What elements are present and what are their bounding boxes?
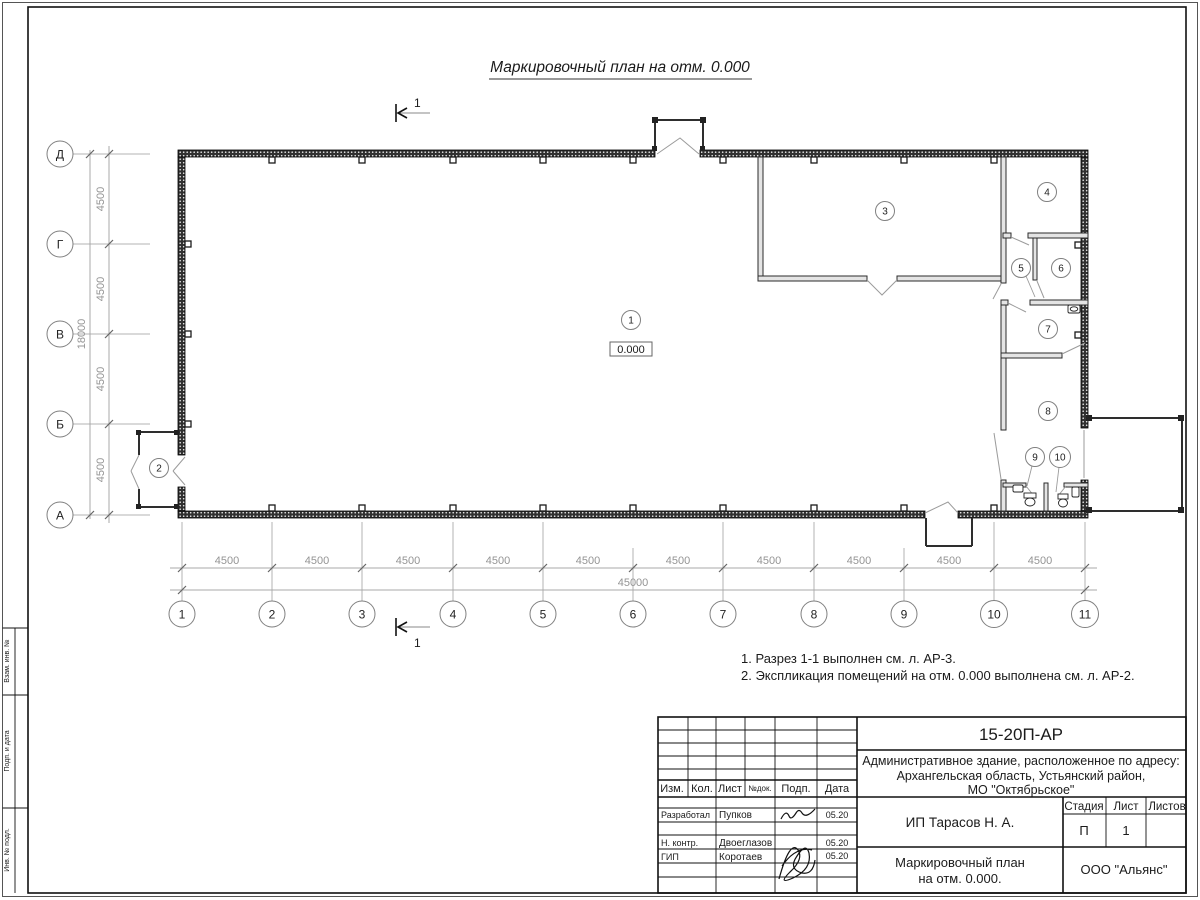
- dim-bottom-10: 4500: [1028, 555, 1052, 567]
- row2-name: Двоеглазов: [719, 838, 772, 849]
- axis-bubble-A: А: [56, 509, 64, 523]
- sheet-label: Лист: [1114, 801, 1140, 813]
- client-name: ИП Тарасов Н. А.: [906, 815, 1015, 830]
- room-2-label: 2: [156, 464, 162, 475]
- title-block: Изм. Кол. Лист №док. Подп. Дата Разработ…: [658, 717, 1186, 893]
- section-label: 1: [414, 96, 421, 110]
- frame-strip-label-1: Взам. инв. №: [4, 639, 11, 682]
- row3-date: 05.20: [826, 851, 849, 861]
- dim-bottom-4: 4500: [486, 555, 510, 567]
- row1-date: 05.20: [826, 810, 849, 820]
- axis-bubble-1: 1: [179, 608, 186, 622]
- sink-icon: [1072, 487, 1079, 497]
- note-2: 2. Экспликация помещений на отм. 0.000 в…: [741, 668, 1135, 683]
- frame-strip-label-3: Инв. № подл.: [4, 828, 11, 872]
- exterior-walls: [178, 150, 1088, 518]
- notes: 1. Разрез 1-1 выполнен см. л. АР-3. 2. Э…: [741, 651, 1135, 683]
- terrace-right: [1086, 415, 1184, 513]
- sheet-number: 1: [1122, 823, 1129, 838]
- section-mark-top: 1: [396, 96, 430, 122]
- signature-1: [781, 809, 815, 819]
- dim-bottom-8: 4500: [847, 555, 871, 567]
- row2-date: 05.20: [826, 838, 849, 848]
- room-1-label: 1: [628, 316, 634, 327]
- entrance-porch-top: [652, 117, 706, 151]
- axis-bubble-3: 3: [359, 608, 366, 622]
- room-8-label: 8: [1045, 407, 1051, 418]
- toilet-icon: [1058, 494, 1068, 499]
- col-data: Дата: [825, 783, 850, 795]
- room-5-label: 5: [1018, 264, 1024, 275]
- dim-left-3: 4500: [95, 367, 107, 391]
- col-ndoc: №док.: [748, 784, 771, 793]
- room-bubbles: 1 2 3 4 5 6 7 8 9 10: [150, 183, 1071, 493]
- room-3-label: 3: [882, 207, 888, 218]
- dim-bottom-7: 4500: [757, 555, 781, 567]
- dim-bottom-2: 4500: [305, 555, 329, 567]
- section-label: 1: [414, 636, 421, 650]
- door-swings: [131, 138, 1085, 513]
- axis-bubble-5: 5: [540, 608, 547, 622]
- elevation-mark: 0.000: [610, 342, 652, 356]
- frame-strip-label-2: Подп. и дата: [4, 730, 11, 771]
- dim-bottom-1: 4500: [215, 555, 239, 567]
- dim-left-2: 4500: [95, 277, 107, 301]
- dim-left-1: 4500: [95, 187, 107, 211]
- axis-bubble-9: 9: [901, 608, 908, 622]
- col-list: Лист: [718, 783, 742, 795]
- dim-left-total: 18000: [76, 319, 88, 350]
- row3-name: Коротаев: [719, 852, 762, 863]
- axis-bubble-G: Г: [57, 238, 64, 252]
- stage-value: П: [1079, 823, 1088, 838]
- col-podp: Подп.: [781, 783, 810, 795]
- axis-bubble-7: 7: [720, 608, 727, 622]
- address-line-2: Архангельская область, Устьянский район,: [897, 769, 1146, 783]
- stage-label: Стадия: [1064, 801, 1103, 813]
- axis-bubble-V: В: [56, 328, 64, 342]
- drawing-name-line-2: на отм. 0.000.: [918, 871, 1001, 886]
- drawing-name-line-1: Маркировочный план: [895, 855, 1025, 870]
- sink-icon: [1013, 485, 1023, 492]
- row1-role: Разработал: [661, 810, 710, 820]
- axis-bubble-6: 6: [630, 608, 637, 622]
- dim-left-4: 4500: [95, 458, 107, 482]
- signature-2: [779, 848, 815, 881]
- axis-bubble-10: 10: [987, 608, 1001, 622]
- room-4-label: 4: [1044, 188, 1050, 199]
- company-name: ООО "Альянс": [1081, 862, 1168, 877]
- col-izm: Изм.: [660, 783, 684, 795]
- note-1: 1. Разрез 1-1 выполнен см. л. АР-3.: [741, 651, 956, 666]
- drawing-title: Маркировочный план на отм. 0.000: [490, 59, 750, 76]
- col-kol: Кол.: [691, 783, 713, 795]
- sheets-label: Листов: [1148, 801, 1185, 813]
- dim-bottom-3: 4500: [396, 555, 420, 567]
- doc-number: 15-20П-АР: [979, 725, 1063, 744]
- room-7-label: 7: [1045, 325, 1051, 336]
- axis-bubble-8: 8: [811, 608, 818, 622]
- drawing-sheet: Взам. инв. № Подп. и дата Инв. № подл. М…: [0, 0, 1200, 900]
- row3-role: ГИП: [661, 852, 679, 862]
- axis-bubble-2: 2: [269, 608, 276, 622]
- room-10-label: 10: [1054, 453, 1066, 464]
- row1-name: Пупков: [719, 810, 752, 821]
- room-6-label: 6: [1058, 264, 1064, 275]
- axis-bubble-4: 4: [450, 608, 457, 622]
- wall-pilasters: [185, 157, 1081, 511]
- axes-horizontal: 1 2 3 4 5 6 7 8 9 10 11: [169, 601, 1099, 628]
- axis-bubble-11: 11: [1079, 608, 1092, 622]
- dim-bottom-total: 45000: [618, 577, 649, 589]
- dim-bottom-6: 4500: [666, 555, 690, 567]
- toilet-icon: [1024, 493, 1036, 498]
- room-9-label: 9: [1032, 453, 1038, 464]
- row2-role: Н. контр.: [661, 838, 698, 848]
- elevation-value: 0.000: [617, 344, 645, 356]
- section-mark-bottom: 1: [396, 618, 430, 650]
- address-line-3: МО "Октябрьское": [968, 783, 1075, 797]
- exit-porch-bottom: [926, 518, 972, 546]
- floor-plan-drawing: Взам. инв. № Подп. и дата Инв. № подл. М…: [0, 0, 1200, 900]
- dim-bottom-9: 4500: [937, 555, 961, 567]
- dim-bottom-5: 4500: [576, 555, 600, 567]
- address-line-1: Административное здание, расположенное п…: [862, 754, 1179, 768]
- axis-bubble-D: Д: [56, 148, 64, 162]
- axis-bubble-B: Б: [56, 418, 64, 432]
